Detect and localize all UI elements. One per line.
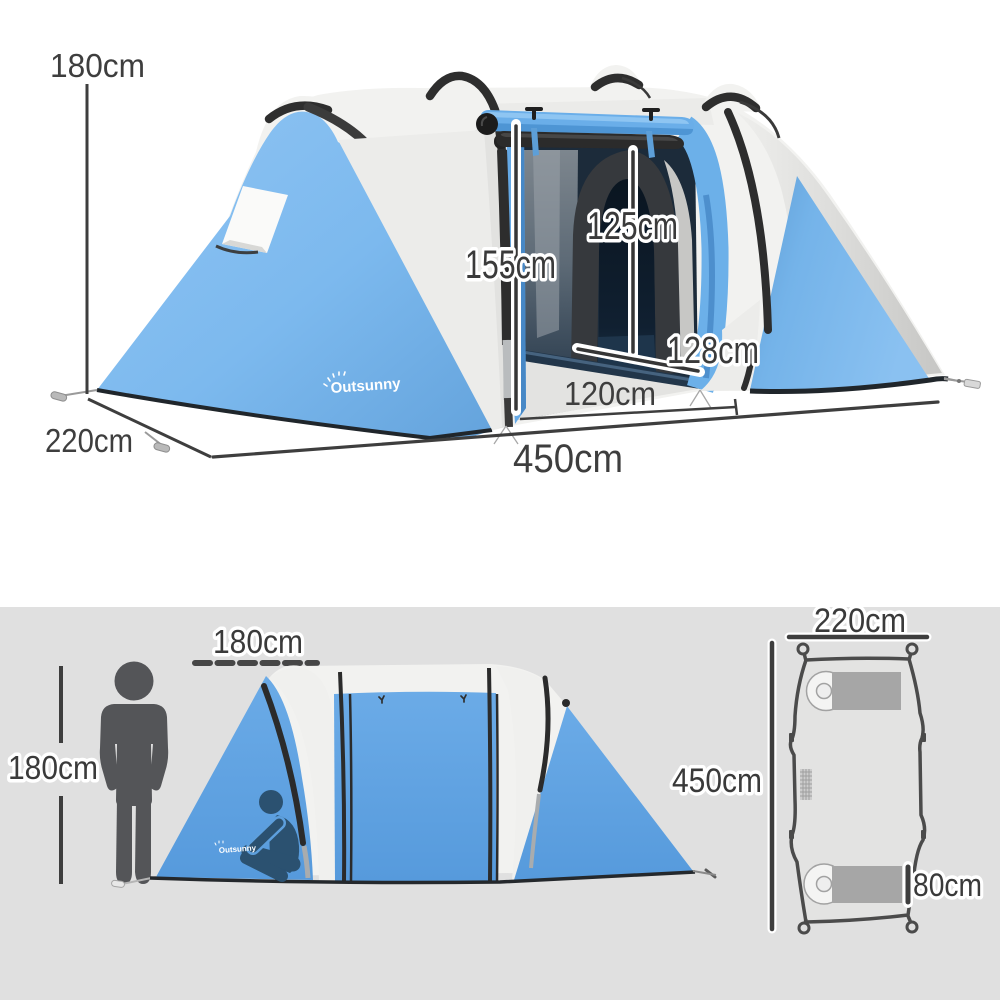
svg-text:220cm: 220cm: [45, 422, 133, 459]
svg-text:128cm: 128cm: [667, 330, 759, 372]
svg-text:125cm: 125cm: [587, 205, 678, 248]
svg-text:120cm: 120cm: [564, 375, 656, 412]
svg-text:180cm: 180cm: [213, 623, 303, 660]
svg-text:180cm: 180cm: [8, 749, 98, 786]
svg-text:80cm: 80cm: [913, 867, 982, 903]
svg-text:450cm: 450cm: [672, 762, 762, 800]
svg-text:155cm: 155cm: [465, 243, 556, 287]
svg-text:180cm: 180cm: [50, 47, 145, 84]
svg-text:450cm: 450cm: [513, 437, 623, 481]
